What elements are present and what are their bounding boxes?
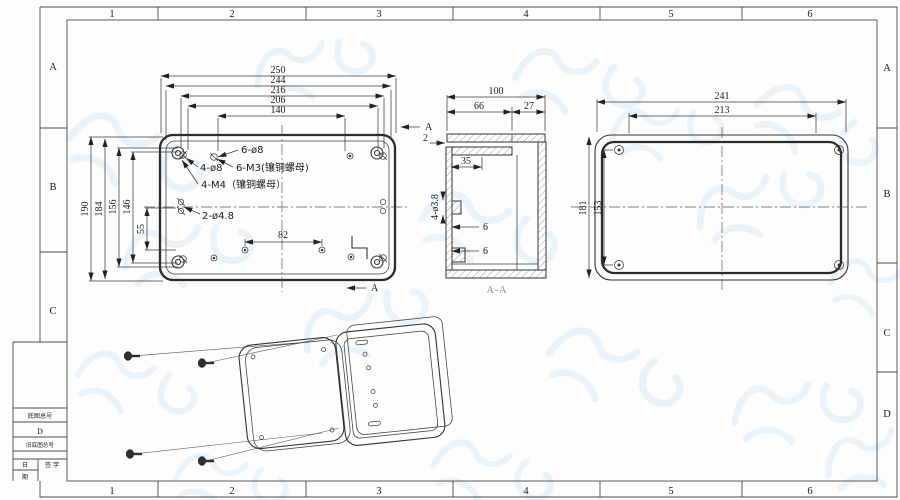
dim-241: 241: [715, 91, 730, 102]
dim-82: 82: [278, 230, 288, 241]
dim-213: 213: [715, 105, 730, 116]
grid-col-4: 4: [523, 9, 529, 20]
dim-181: 181: [578, 201, 589, 216]
note-4-m4: 4-M4（镶铜螺母）: [201, 178, 286, 191]
title-block-master-no-label: 底图总号: [28, 412, 53, 420]
title-block-date-top: 日: [22, 462, 28, 469]
grid-col-1b: 1: [109, 486, 114, 497]
iso-box: [334, 316, 454, 447]
note-6-m3: 6-M3(镶铜螺母): [236, 161, 309, 174]
title-block: 底图总号 D 旧底图总号 日 期 签 字: [13, 342, 67, 481]
grid-col-2: 2: [229, 9, 234, 20]
section-label-bottom: A: [371, 283, 379, 294]
face-corner-screws: [615, 146, 844, 270]
section-cut-marks: A A: [347, 122, 433, 294]
grid-row-c-left: C: [49, 306, 56, 317]
grid-col-1: 1: [109, 9, 114, 20]
dim-156: 156: [108, 200, 119, 215]
dim-190: 190: [80, 202, 91, 217]
dim-184: 184: [94, 202, 105, 217]
dim-6-lower: 6: [483, 246, 488, 257]
note-6-d8: 6-ø8: [241, 145, 263, 156]
note-4-d38: 4-ø3.8: [430, 194, 441, 220]
dim-27: 27: [524, 101, 534, 112]
grid-col-3: 3: [376, 9, 381, 20]
dim-55: 55: [136, 224, 147, 234]
grid-row-a-left: A: [49, 62, 57, 73]
lid-view: 250 244 216 206 140 190 184 156 146 55: [80, 65, 433, 294]
grid-row-b-left: B: [49, 182, 56, 193]
dim-2: 2: [423, 133, 428, 144]
section-label-top: A: [425, 122, 433, 133]
grid-col-4b: 4: [523, 486, 529, 497]
grid-col-2b: 2: [229, 486, 234, 497]
grid-col-5b: 5: [668, 486, 673, 497]
grid-row-b-right: B: [883, 189, 890, 200]
dim-153: 153: [593, 201, 604, 216]
grid-col-5: 5: [668, 9, 673, 20]
title-block-master-no-value: D: [37, 427, 43, 436]
isometric-view: [124, 316, 454, 465]
grid-row-c-right: C: [883, 328, 890, 339]
grid-col-6: 6: [807, 9, 812, 20]
grid-col-6b: 6: [807, 486, 812, 497]
dim-140: 140: [271, 105, 286, 116]
drawing-canvas: 1 2 3 4 5 6 1 2 3 4 5 6 A B C A B C D 底图…: [0, 0, 900, 500]
grid-col-3b: 3: [376, 486, 381, 497]
dim-100: 100: [489, 86, 504, 97]
title-block-date-bottom: 期: [22, 473, 28, 481]
dim-35: 35: [461, 156, 471, 167]
grid-row-a-right: A: [883, 63, 891, 74]
dim-66: 66: [474, 101, 484, 112]
title-block-old-master-no-label: 旧底图总号: [26, 441, 54, 449]
dim-146: 146: [122, 200, 133, 215]
drawing-sheet: 1 2 3 4 5 6 1 2 3 4 5 6 A B C A B C D 底图…: [0, 0, 900, 500]
title-block-sign-label: 签 字: [45, 461, 59, 469]
section-title: A-A: [487, 285, 508, 296]
note-4-d8: 4-ø8: [200, 163, 222, 174]
dim-6-upper: 6: [483, 222, 488, 233]
section-view: 100 66 27 2 35 4-ø3.8 6 6 A-A: [423, 86, 546, 296]
grid-row-d-right: D: [883, 409, 891, 420]
note-2-d48: 2-ø4.8: [202, 211, 234, 222]
